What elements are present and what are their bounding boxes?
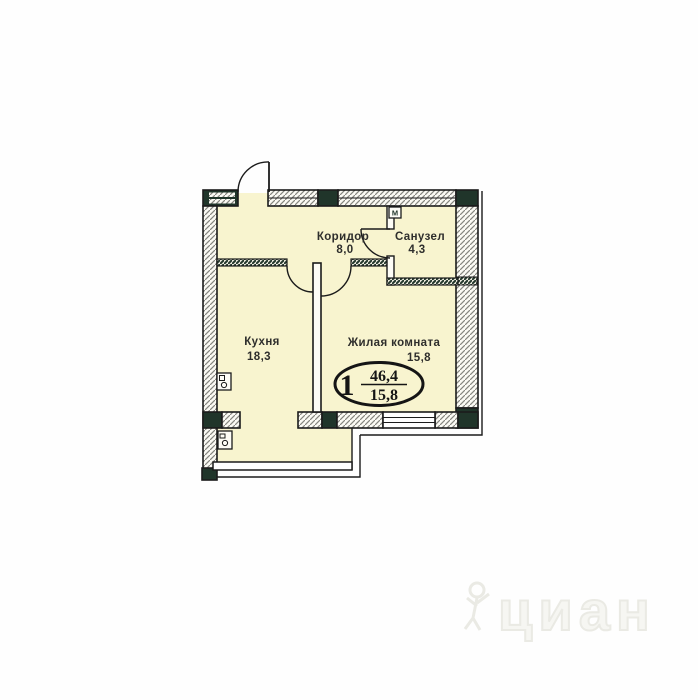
wall-bottom-hatch-1 bbox=[298, 412, 322, 428]
wall-top-dark-mid bbox=[318, 190, 338, 206]
living-room-window bbox=[383, 412, 435, 428]
wall-bathroom-bottom bbox=[387, 278, 458, 285]
watermark-text: циан bbox=[498, 579, 656, 642]
wall-bottom-dark-1 bbox=[322, 412, 337, 428]
watermark: циан bbox=[465, 579, 656, 642]
wall-corridor-kitchen bbox=[217, 259, 287, 266]
wall-bottom-dark-2 bbox=[458, 412, 478, 428]
wall-corridor-living-stub bbox=[351, 259, 390, 266]
badge-total-area: 46,4 bbox=[370, 368, 398, 385]
wall-hatch-mark bbox=[209, 193, 235, 198]
wall-right bbox=[456, 206, 478, 408]
vent-shaft-label: М bbox=[392, 209, 398, 218]
wall-top-left-dark bbox=[203, 190, 238, 206]
badge-living-area: 15,8 bbox=[370, 387, 398, 404]
kitchen-name: Кухня bbox=[244, 336, 280, 348]
kitchen-window-band bbox=[213, 462, 352, 470]
wall-bottom-hatch-2 bbox=[337, 412, 383, 428]
corridor-name: Коридор bbox=[317, 231, 369, 243]
kitchen-area: 18,3 bbox=[247, 351, 271, 363]
floor-plan-canvas: М Коридор 8,0 Санузел 4,3 Кухня 18,3 Жил… bbox=[0, 0, 698, 700]
wall-left-pier-hatch bbox=[222, 412, 240, 428]
watermark-person-icon bbox=[470, 583, 484, 597]
corridor-area: 8,0 bbox=[336, 244, 353, 256]
bathroom-name: Санузел bbox=[395, 231, 445, 243]
watermark-person-body bbox=[465, 594, 489, 630]
wall-hatch-mark bbox=[209, 199, 235, 204]
badge-room-count: 1 bbox=[340, 369, 355, 402]
wall-partition-kitchen-living bbox=[313, 263, 321, 412]
wall-top-right-dark bbox=[456, 190, 478, 206]
living-room-name: Жилая комната bbox=[347, 337, 441, 349]
living-room-area: 15,8 bbox=[407, 352, 431, 364]
wall-left bbox=[203, 206, 217, 470]
bathroom-area: 4,3 bbox=[408, 244, 425, 256]
wall-left-pier-dark bbox=[203, 412, 222, 428]
floor-plan: М Коридор 8,0 Санузел 4,3 Кухня 18,3 Жил… bbox=[0, 0, 698, 700]
wall-right-bath-junction bbox=[457, 277, 477, 285]
entrance-door-arc bbox=[238, 162, 269, 192]
wall-bottom-hatch-3 bbox=[435, 412, 458, 428]
